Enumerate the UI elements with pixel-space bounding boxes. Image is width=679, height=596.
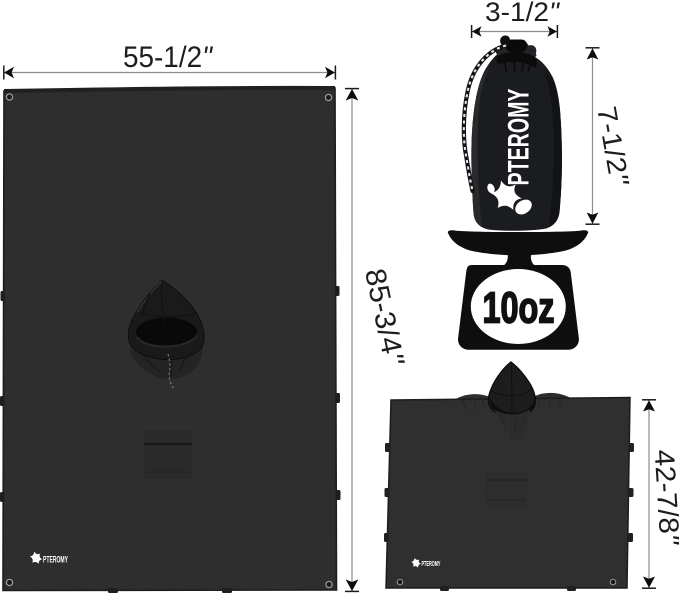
svg-text:PTEROMY: PTEROMY xyxy=(503,89,536,186)
svg-text:PTEROMY: PTEROMY xyxy=(422,559,441,568)
svg-text:55-1/2": 55-1/2" xyxy=(123,41,213,74)
svg-text:PTEROMY: PTEROMY xyxy=(43,555,68,565)
svg-text:10oz: 10oz xyxy=(483,284,555,333)
svg-text:3-1/2": 3-1/2" xyxy=(485,0,560,27)
